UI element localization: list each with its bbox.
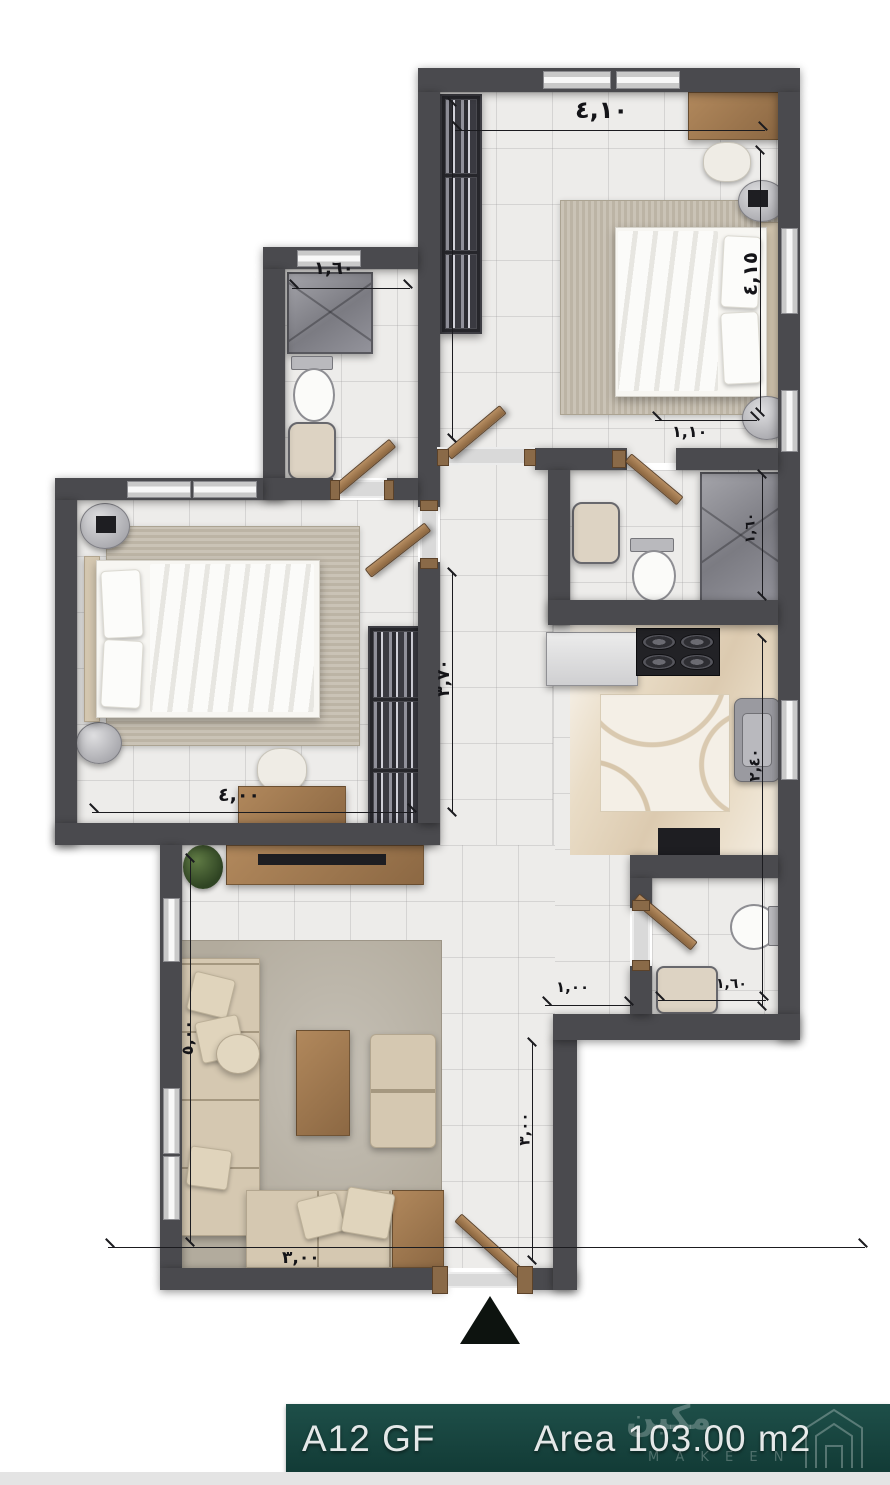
footer-strip xyxy=(0,1472,890,1485)
dim-line xyxy=(452,102,453,438)
door-jamb xyxy=(420,500,438,511)
sofa-side-table xyxy=(392,1190,444,1268)
bedroom-2-desk-chair xyxy=(703,142,751,182)
sofa-cushion xyxy=(185,1145,232,1190)
door-jamb xyxy=(432,1266,448,1294)
stove-burner xyxy=(642,654,676,670)
window xyxy=(781,390,798,452)
bedroom-2-blanket xyxy=(618,231,718,391)
bathroom-2-sink xyxy=(288,422,336,480)
plant xyxy=(183,845,223,889)
door-jamb xyxy=(384,480,394,500)
bedroom-1-blanket xyxy=(150,564,314,712)
dim-line xyxy=(108,1247,865,1248)
dim-line xyxy=(658,1000,766,1001)
wall xyxy=(55,500,77,845)
window xyxy=(781,228,798,314)
wardrobe-shelf xyxy=(445,254,477,329)
dim-label: ١,٦٠ xyxy=(716,976,747,992)
dim-label: ١,٠٠ xyxy=(556,978,589,996)
dim-line xyxy=(762,638,763,1006)
bed-pillow xyxy=(720,311,762,385)
kitchen-counter xyxy=(546,632,638,686)
wc-sink xyxy=(656,966,718,1014)
door-jamb xyxy=(330,480,340,500)
bathroom-1-toilet xyxy=(632,550,676,602)
dim-line xyxy=(545,1005,631,1006)
window xyxy=(193,481,257,498)
stove-burner xyxy=(680,634,714,650)
door-jamb xyxy=(517,1266,533,1294)
door-jamb xyxy=(632,900,650,911)
door-jamb xyxy=(632,960,650,971)
bedroom-2-desk xyxy=(688,92,780,140)
dim-label: ٣,٠٠ xyxy=(282,1248,320,1268)
window xyxy=(781,700,798,780)
wall xyxy=(553,1014,800,1040)
sofa-cushion xyxy=(340,1186,395,1240)
dim-label: ١,٦٠ xyxy=(742,513,758,544)
window xyxy=(163,1088,180,1154)
bathroom-1-sink xyxy=(572,502,620,564)
floor-hallway xyxy=(440,463,555,845)
wall xyxy=(418,92,440,507)
entrance-arrow xyxy=(460,1296,520,1344)
dim-line xyxy=(292,288,410,289)
dim-label: ١,١٠ xyxy=(672,422,707,441)
window xyxy=(127,481,191,498)
wall xyxy=(548,600,778,625)
dim-label: ٣,٧٠ xyxy=(434,659,454,697)
dim-label: ٢,٤٠ xyxy=(746,748,764,781)
window xyxy=(543,71,611,89)
wardrobe-shelf xyxy=(445,177,477,252)
sofa-pouf xyxy=(216,1034,260,1074)
dim-line xyxy=(532,1042,533,1260)
door-jamb xyxy=(612,450,626,468)
bedroom-1-side-table xyxy=(76,722,122,764)
wall xyxy=(160,1268,445,1290)
wall xyxy=(553,1036,577,1290)
bathroom-2-shower xyxy=(287,272,373,354)
tv-console xyxy=(226,845,424,885)
bathroom-1-shower xyxy=(700,472,782,602)
dim-label: ٤,١٥ xyxy=(738,252,762,296)
armchair xyxy=(370,1034,436,1148)
tv-screen xyxy=(258,854,386,865)
stove-burner xyxy=(680,654,714,670)
kitchen-rug xyxy=(600,694,730,812)
dim-label: ٣,٠٠ xyxy=(516,1112,534,1145)
wall xyxy=(676,448,778,470)
window xyxy=(616,71,680,89)
door-jamb xyxy=(524,449,536,466)
wall xyxy=(263,269,285,500)
dim-line xyxy=(655,420,757,421)
watermark-latin: M A K E E N xyxy=(648,1450,789,1465)
watermark-arabic: مكين xyxy=(626,1398,711,1438)
dim-label: ٤,١٠ xyxy=(575,96,628,124)
stove-burner xyxy=(642,634,676,650)
nightstand-decor xyxy=(748,190,768,207)
title-bar: A12 GF Area 103.00 m2 مكين M A K E E N xyxy=(286,1404,890,1472)
wall xyxy=(630,855,778,878)
bed-pillow xyxy=(100,569,144,639)
door-jamb xyxy=(437,449,449,466)
wall xyxy=(263,478,333,500)
watermark-house-logo xyxy=(788,1406,880,1470)
dim-label: ٥,٠٠ xyxy=(178,1020,197,1055)
unit-label: A12 GF xyxy=(302,1418,436,1460)
kitchen-stove xyxy=(636,628,720,676)
wall xyxy=(55,823,440,845)
door-jamb xyxy=(420,558,438,569)
dim-line xyxy=(92,812,414,813)
door-opening xyxy=(632,908,650,966)
bathroom-2-toilet xyxy=(293,368,335,422)
dim-label: ١,٦٠ xyxy=(314,258,354,279)
dim-label: ٤,٠٠ xyxy=(218,784,260,806)
window xyxy=(163,898,180,962)
dim-line xyxy=(762,474,763,596)
floor-plan-canvas: ٤,١٠ ٤,١٥ ١,١٠ ١,٦٠ ٤,٠٠ ٣,٧٠ ٣,٠٠ ٥,٠٠ … xyxy=(0,0,890,1485)
nightstand-decor xyxy=(96,516,116,533)
coffee-table xyxy=(296,1030,350,1136)
wardrobe-shelf xyxy=(445,99,477,174)
window xyxy=(163,1156,180,1220)
dim-line xyxy=(455,130,765,131)
bed-pillow xyxy=(100,639,144,709)
wall xyxy=(630,966,652,1014)
